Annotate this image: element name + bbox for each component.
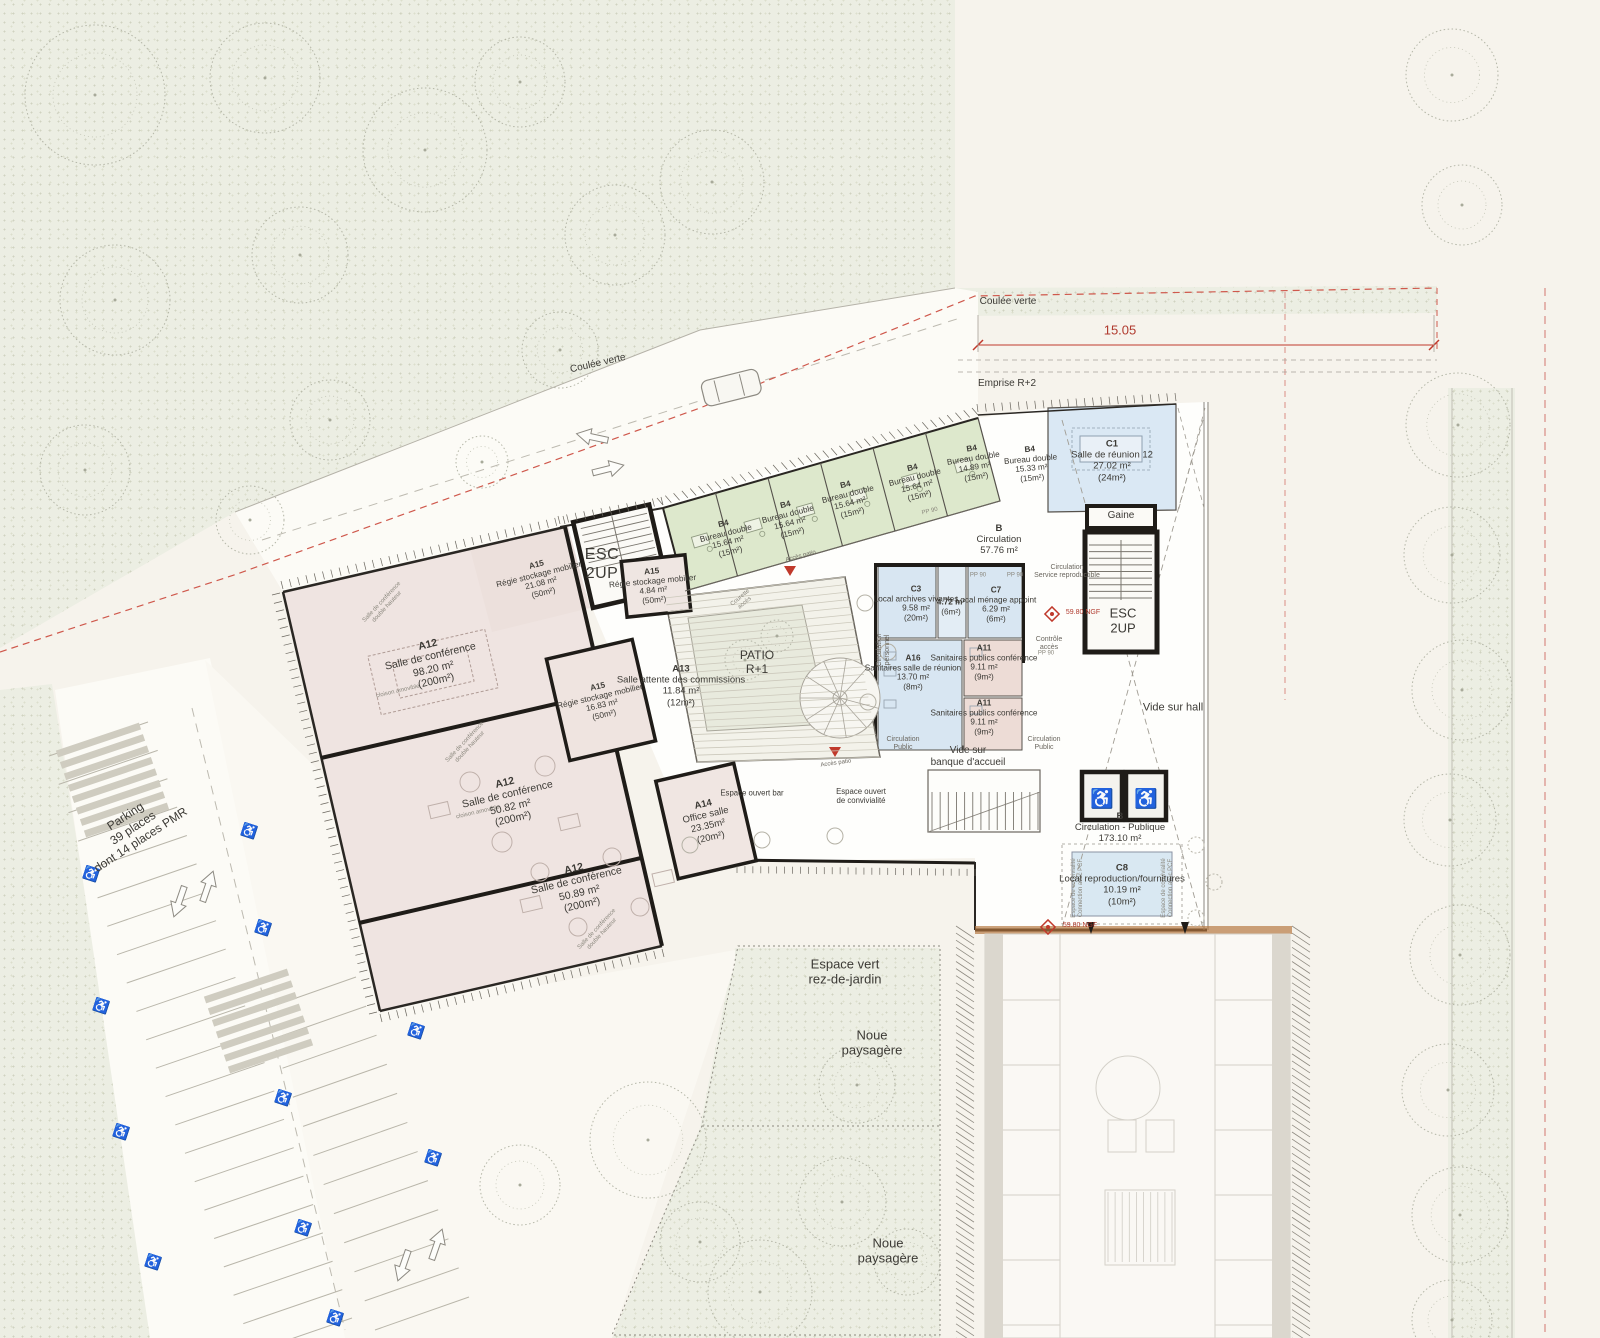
- escarpment-hatch: [1292, 1047, 1310, 1059]
- facade-tick: [1142, 395, 1143, 403]
- escarpment-hatch: [956, 1004, 974, 1016]
- facade-tick: [272, 593, 280, 595]
- facade-tick: [291, 677, 299, 679]
- facade-tick: [554, 974, 556, 982]
- escarpment-hatch: [956, 933, 974, 945]
- escarpment-hatch: [1292, 1018, 1310, 1030]
- escarpment-hatch: [1292, 1082, 1310, 1094]
- escarpment-hatch: [956, 1267, 974, 1279]
- facade-tick: [1150, 394, 1151, 402]
- escarpment-hatch: [1292, 1160, 1310, 1172]
- escarpment-hatch: [956, 1054, 974, 1066]
- escarpment-hatch: [1292, 1075, 1310, 1087]
- room-a16: [878, 640, 962, 750]
- escarpment-hatch: [1292, 947, 1310, 959]
- facade-tick: [1159, 394, 1160, 402]
- escarpment-hatch: [956, 1033, 974, 1045]
- facade-tick: [307, 744, 315, 746]
- facade-tick: [1117, 396, 1118, 404]
- facade-tick: [1035, 401, 1036, 409]
- escarpment-hatch: [1292, 1139, 1310, 1151]
- facade-tick: [1126, 396, 1127, 404]
- facade-tick: [301, 719, 309, 721]
- escarpment-hatch: [956, 1096, 974, 1108]
- escarpment-hatch: [1292, 1132, 1310, 1144]
- escarpment-hatch: [1292, 1175, 1310, 1187]
- escarpment-hatch: [956, 1175, 974, 1187]
- escarpment-hatch: [1292, 1295, 1310, 1307]
- escarpment-hatch: [1292, 1104, 1310, 1116]
- escarpment-hatch: [956, 1118, 974, 1130]
- escarpment-hatch: [1292, 976, 1310, 988]
- facade-tick: [1134, 395, 1135, 403]
- escarpment-hatch: [956, 1203, 974, 1215]
- escarpment-hatch: [1292, 1310, 1310, 1322]
- escarpment-hatch: [956, 1217, 974, 1229]
- facade-tick: [546, 976, 548, 984]
- escarpment-hatch: [1292, 1004, 1310, 1016]
- escarpment-hatch: [956, 1082, 974, 1094]
- escarpment-hatch: [1292, 1025, 1310, 1037]
- plan-geometry: ♿ ♿: [0, 0, 1600, 1338]
- escarpment-hatch: [956, 1253, 974, 1265]
- escarpment-hatch: [956, 997, 974, 1009]
- facade-tick: [1084, 398, 1085, 406]
- escarpment-hatch: [1292, 1182, 1310, 1194]
- facade-tick: [596, 964, 598, 972]
- facade-tick: [1076, 399, 1077, 407]
- facade-tick: [562, 972, 564, 980]
- escarpment-hatch: [1292, 1203, 1310, 1215]
- escarpment-hatch: [956, 926, 974, 938]
- escarpment-hatch: [1292, 990, 1310, 1002]
- facade-tick: [1167, 393, 1168, 401]
- escarpment-hatch: [956, 1317, 974, 1329]
- facade-tick: [1027, 401, 1028, 409]
- wheelchair-icon: ♿: [1134, 787, 1158, 810]
- escarpment-hatch: [956, 990, 974, 1002]
- facade-tick: [274, 601, 282, 603]
- facade-tick: [288, 660, 296, 662]
- facade-tick: [621, 959, 623, 967]
- meeting-table: [1080, 436, 1142, 462]
- escarpment-hatch: [1292, 983, 1310, 995]
- ghost-building: [975, 926, 1292, 1338]
- escarpment-hatch: [956, 1189, 974, 1201]
- escarpment-hatch: [1292, 1246, 1310, 1258]
- facade-tick: [604, 962, 606, 970]
- escarpment-hatch: [956, 1153, 974, 1165]
- escarpment-hatch: [956, 1168, 974, 1180]
- escarpment-hatch: [1292, 1089, 1310, 1101]
- escarpment-hatch: [956, 1047, 974, 1059]
- facade-tick: [571, 970, 573, 978]
- escarpment-hatch: [956, 1104, 974, 1116]
- escarpment-hatch: [1292, 1253, 1310, 1265]
- facade-tick: [305, 735, 313, 737]
- escarpment-hatch: [956, 1231, 974, 1243]
- facade-tick: [587, 966, 589, 974]
- escarpment-hatch: [956, 1246, 974, 1258]
- facade-tick: [1043, 400, 1044, 408]
- escarpment-hatch: [956, 940, 974, 952]
- facade-tick: [295, 694, 303, 696]
- room-c8: [1072, 852, 1172, 916]
- escarpment-hatch: [956, 1132, 974, 1144]
- escarpment-hatch: [956, 1260, 974, 1272]
- facade-tick: [612, 960, 614, 968]
- escarpment-hatch: [956, 1239, 974, 1251]
- escarpment-hatch: [1292, 1153, 1310, 1165]
- escarpment-hatch: [956, 1061, 974, 1073]
- escarpment-hatch: [1292, 1224, 1310, 1236]
- escarpment-hatch: [1292, 997, 1310, 1009]
- facade-tick: [579, 968, 581, 976]
- facade-tick: [286, 652, 294, 654]
- escarpment-hatch: [956, 983, 974, 995]
- escarpment-hatch: [956, 1146, 974, 1158]
- escarpment-hatch: [1292, 1061, 1310, 1073]
- escarpment-hatch: [1292, 933, 1310, 945]
- escarpment-hatch: [1292, 940, 1310, 952]
- escarpment-hatch: [1292, 1125, 1310, 1137]
- escarpment-hatch: [1292, 1281, 1310, 1293]
- hall-south-wall: [737, 860, 975, 863]
- escarpment-hatch: [956, 1324, 974, 1336]
- escarpment-hatch: [956, 962, 974, 974]
- escarpment-hatch: [1292, 1118, 1310, 1130]
- escarpment-hatch: [1292, 926, 1310, 938]
- facade-tick: [293, 685, 301, 687]
- escarpment-hatch: [956, 1288, 974, 1300]
- escarpment-hatch: [1292, 954, 1310, 966]
- escarpment-hatch: [1292, 1317, 1310, 1329]
- facade-tick: [309, 752, 317, 754]
- facade-tick: [1109, 397, 1110, 405]
- stair-banque: [928, 770, 1040, 832]
- escarpment-hatch: [956, 1302, 974, 1314]
- escarpment-hatch: [956, 969, 974, 981]
- facade-tick: [985, 404, 986, 412]
- escarpment-hatch: [1292, 1040, 1310, 1052]
- facade-tick: [629, 957, 631, 965]
- facade-tick: [284, 643, 292, 645]
- facade-tick: [1093, 398, 1094, 406]
- escarpment-hatch: [1292, 962, 1310, 974]
- escarpment-hatch: [956, 1295, 974, 1307]
- escarpment-hatch: [956, 1310, 974, 1322]
- escarpment-hatch: [956, 947, 974, 959]
- escarpment-hatch: [1292, 1068, 1310, 1080]
- facade-tick: [282, 635, 290, 637]
- facade-tick: [994, 403, 995, 411]
- escarpment-hatch: [956, 1210, 974, 1222]
- escarpment-hatch: [1292, 1231, 1310, 1243]
- facade-tick: [637, 955, 639, 963]
- escarpment-hatch: [1292, 1189, 1310, 1201]
- escarpment-hatch: [956, 1224, 974, 1236]
- facade-tick: [289, 668, 297, 670]
- room-c3: [878, 566, 936, 638]
- escarpment-hatch: [956, 1160, 974, 1172]
- escarpment-hatch: [1292, 1217, 1310, 1229]
- facade-tick: [645, 953, 647, 961]
- escarpment-hatch: [956, 1196, 974, 1208]
- escarpment-hatch: [1292, 1274, 1310, 1286]
- escarpment-hatch: [1292, 1096, 1310, 1108]
- room-mid: [938, 566, 966, 638]
- facade-tick: [1002, 403, 1003, 411]
- facade-tick: [1060, 399, 1061, 407]
- facade-tick: [1068, 399, 1069, 407]
- facade-tick: [299, 710, 307, 712]
- facade-tick: [1175, 393, 1176, 401]
- facade-tick: [662, 949, 664, 957]
- escarpment-hatch: [1292, 1260, 1310, 1272]
- escarpment-hatch: [1292, 1111, 1310, 1123]
- facade-tick: [280, 627, 288, 629]
- wheelchair-icon: ♿: [1090, 787, 1114, 810]
- escarpment-hatch: [956, 976, 974, 988]
- escarpment-hatch: [956, 1274, 974, 1286]
- facade-tick: [1051, 400, 1052, 408]
- escarpment-hatch: [956, 1139, 974, 1151]
- escarpment-hatch: [1292, 1239, 1310, 1251]
- facade-tick: [1010, 402, 1011, 410]
- ghost-top-wall: [975, 926, 1292, 934]
- facade-tick: [303, 727, 311, 729]
- facade-tick: [311, 761, 319, 763]
- facade-tick: [278, 618, 286, 620]
- site-plan: { "labels": { "coulee_verte": "Coulée ve…: [0, 0, 1600, 1338]
- escarpment-hatch: [1292, 1196, 1310, 1208]
- escarpment-hatch: [1292, 1054, 1310, 1066]
- escarpment-hatch: [956, 954, 974, 966]
- facade-tick: [276, 610, 284, 612]
- escarpment-hatch: [1292, 1033, 1310, 1045]
- escarpment-hatch: [1292, 1288, 1310, 1300]
- escarpment-hatch: [956, 1018, 974, 1030]
- escarpment-hatch: [1292, 1302, 1310, 1314]
- escarpment-hatch: [956, 1182, 974, 1194]
- gaine-shaft: [1087, 506, 1155, 528]
- room-c7: [968, 566, 1022, 638]
- escarpment-hatch: [956, 1068, 974, 1080]
- escarpment-hatch: [956, 1075, 974, 1087]
- escarpment-hatch: [956, 1011, 974, 1023]
- facade-tick: [654, 951, 656, 959]
- escarpment-hatch: [1292, 1267, 1310, 1279]
- facade-tick: [297, 702, 305, 704]
- facade-tick: [1101, 397, 1102, 405]
- escarpment-hatch: [1292, 1324, 1310, 1336]
- escarpment-hatch: [956, 1040, 974, 1052]
- escarpment-hatch: [956, 1281, 974, 1293]
- escarpment-hatch: [1292, 1210, 1310, 1222]
- escarpment-hatch: [956, 1125, 974, 1137]
- facade-tick: [1018, 402, 1019, 410]
- escarpment-hatch: [1292, 969, 1310, 981]
- escarpment-hatch: [956, 1111, 974, 1123]
- room-a15-2: [621, 555, 691, 617]
- escarpment-hatch: [1292, 1146, 1310, 1158]
- table-rect: [652, 870, 674, 887]
- escarpment-hatch: [956, 1025, 974, 1037]
- escarpment-hatch: [1292, 1011, 1310, 1023]
- escarpment-hatch: [1292, 1168, 1310, 1180]
- escarpment-hatch: [956, 1089, 974, 1101]
